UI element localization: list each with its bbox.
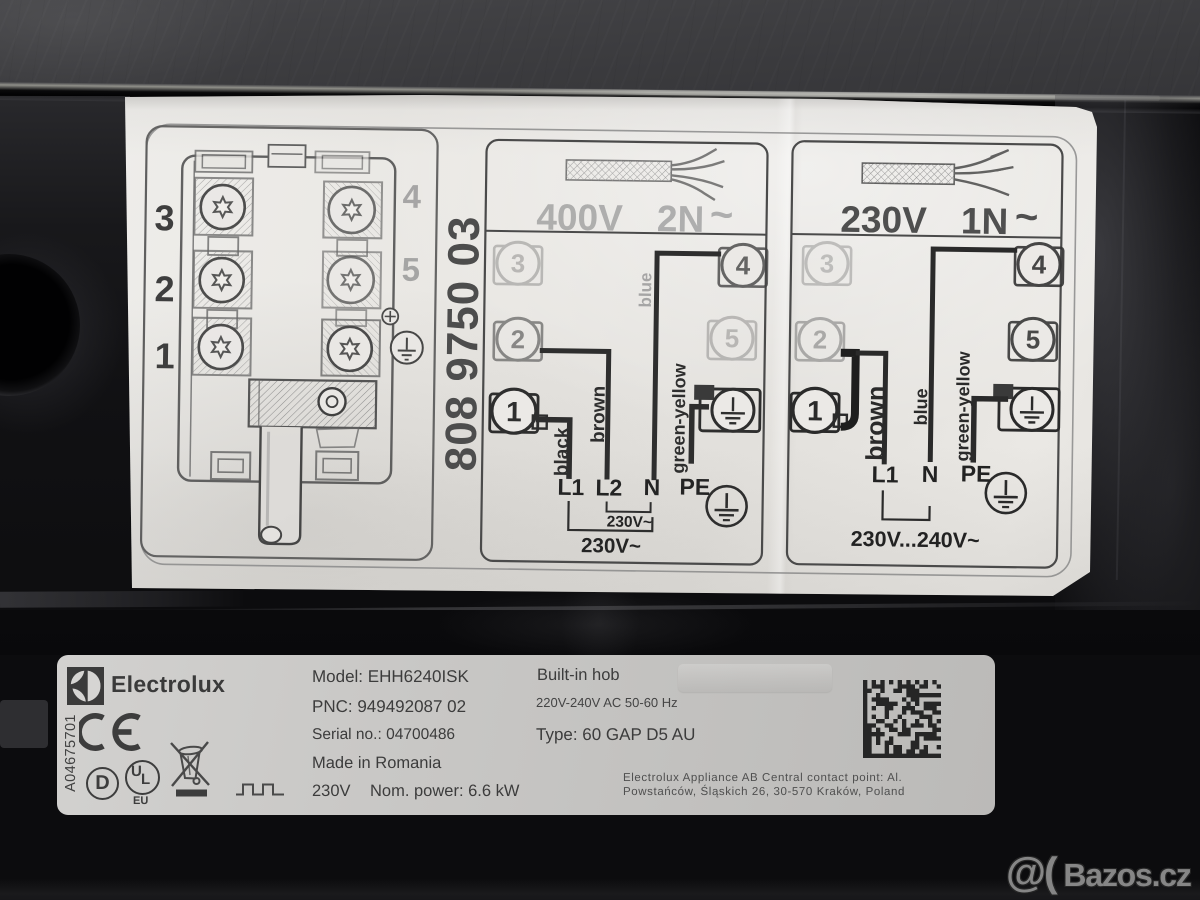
svg-text:4: 4 <box>736 250 751 280</box>
svg-text:3: 3 <box>154 197 175 238</box>
svg-text:1N: 1N <box>961 200 1009 242</box>
svg-text:2: 2 <box>813 324 828 354</box>
svg-text:L1: L1 <box>557 474 584 500</box>
svg-text:400V: 400V <box>536 196 623 238</box>
svg-text:230V~: 230V~ <box>607 513 652 531</box>
svg-text:4: 4 <box>402 178 422 215</box>
svg-text:L1: L1 <box>871 461 898 487</box>
svg-text:808 9750 03: 808 9750 03 <box>437 215 490 471</box>
svg-text:blue: blue <box>636 272 655 307</box>
svg-text:5: 5 <box>1026 324 1041 354</box>
svg-text:2: 2 <box>154 268 175 309</box>
svg-text:N: N <box>643 474 660 500</box>
svg-text:1: 1 <box>506 396 522 427</box>
svg-text:PE: PE <box>961 460 992 486</box>
svg-text:green-yellow: green-yellow <box>668 362 690 473</box>
svg-text:5: 5 <box>401 251 420 288</box>
svg-text:L2: L2 <box>595 474 622 500</box>
svg-text:black: black <box>552 427 574 476</box>
svg-text:5: 5 <box>725 323 740 353</box>
svg-text:230V...240V~: 230V...240V~ <box>851 527 980 553</box>
svg-text:1: 1 <box>154 335 175 376</box>
svg-text:4: 4 <box>1032 249 1047 279</box>
svg-text:3: 3 <box>511 248 526 278</box>
svg-text:230V~: 230V~ <box>581 534 641 558</box>
svg-text:1: 1 <box>807 395 823 426</box>
svg-text:2N: 2N <box>657 198 705 240</box>
svg-text:N: N <box>922 461 939 487</box>
svg-text:PE: PE <box>679 474 710 500</box>
svg-text:green-yellow: green-yellow <box>952 350 974 461</box>
svg-text:brown: brown <box>861 386 890 461</box>
svg-text:3: 3 <box>820 248 835 278</box>
svg-text:brown: brown <box>588 386 610 443</box>
svg-text:2: 2 <box>510 324 525 354</box>
svg-text:blue: blue <box>911 388 932 425</box>
svg-text:~: ~ <box>710 193 734 237</box>
svg-text:~: ~ <box>1015 195 1039 239</box>
svg-text:230V: 230V <box>840 199 927 241</box>
